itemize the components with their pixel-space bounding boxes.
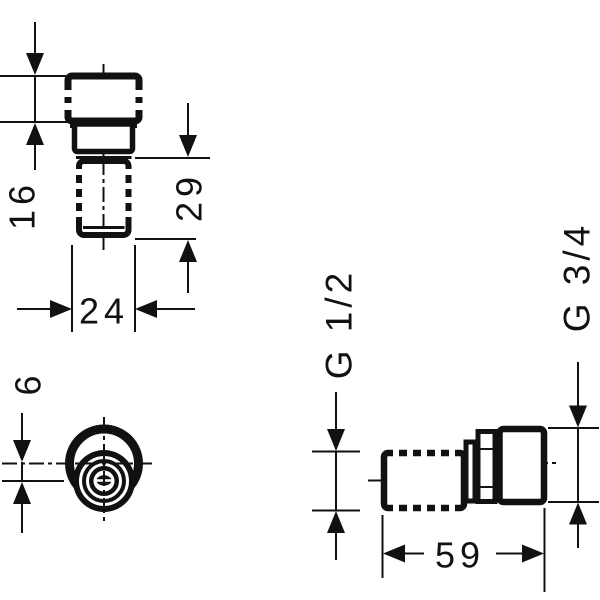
arrowhead-left bbox=[383, 545, 405, 563]
arrowhead-up bbox=[569, 503, 587, 525]
arrowhead-down bbox=[569, 406, 587, 428]
dimension-29: 29 bbox=[135, 103, 210, 293]
dimension-59: 59 bbox=[383, 508, 545, 592]
arrowhead-down bbox=[26, 53, 44, 75]
dim-label-16: 16 bbox=[2, 180, 43, 230]
arrowhead-down bbox=[327, 429, 345, 451]
collar bbox=[466, 442, 475, 501]
dim-label-59: 59 bbox=[435, 535, 485, 576]
arrowhead-up bbox=[26, 123, 44, 145]
arrowhead-down bbox=[179, 135, 197, 157]
arrowhead-right bbox=[522, 545, 544, 563]
right-thread-cylinder bbox=[500, 429, 545, 502]
arrowhead-up bbox=[179, 240, 197, 262]
arrowhead-right bbox=[50, 300, 72, 318]
technical-drawing-canvas: 16 29 24 6 bbox=[0, 0, 600, 600]
dimension-g34: G 3/4 bbox=[548, 222, 599, 548]
dim-label-g34: G 3/4 bbox=[557, 222, 598, 333]
arrowhead-up bbox=[327, 511, 345, 533]
arrowhead-up bbox=[13, 482, 31, 504]
union-nut bbox=[478, 432, 495, 502]
arrowhead-down bbox=[13, 440, 31, 462]
dim-label-29: 29 bbox=[169, 172, 210, 222]
hex-section bbox=[75, 124, 133, 152]
left-thread-cylinder bbox=[384, 453, 464, 508]
cap-outline bbox=[68, 76, 139, 121]
dim-label-6: 6 bbox=[8, 370, 49, 395]
side-view bbox=[368, 429, 556, 508]
dim-label-24: 24 bbox=[79, 291, 129, 332]
dimension-g12: G 1/2 bbox=[312, 269, 360, 560]
dimension-24: 24 bbox=[17, 245, 195, 332]
dimension-6: 6 bbox=[8, 370, 49, 533]
dimension-16: 16 bbox=[0, 22, 68, 230]
drawing-svg: 16 29 24 6 bbox=[0, 0, 600, 600]
top-view bbox=[2, 417, 155, 523]
arrowhead-left bbox=[135, 300, 157, 318]
dim-label-g12: G 1/2 bbox=[319, 269, 360, 380]
front-view bbox=[68, 64, 139, 252]
